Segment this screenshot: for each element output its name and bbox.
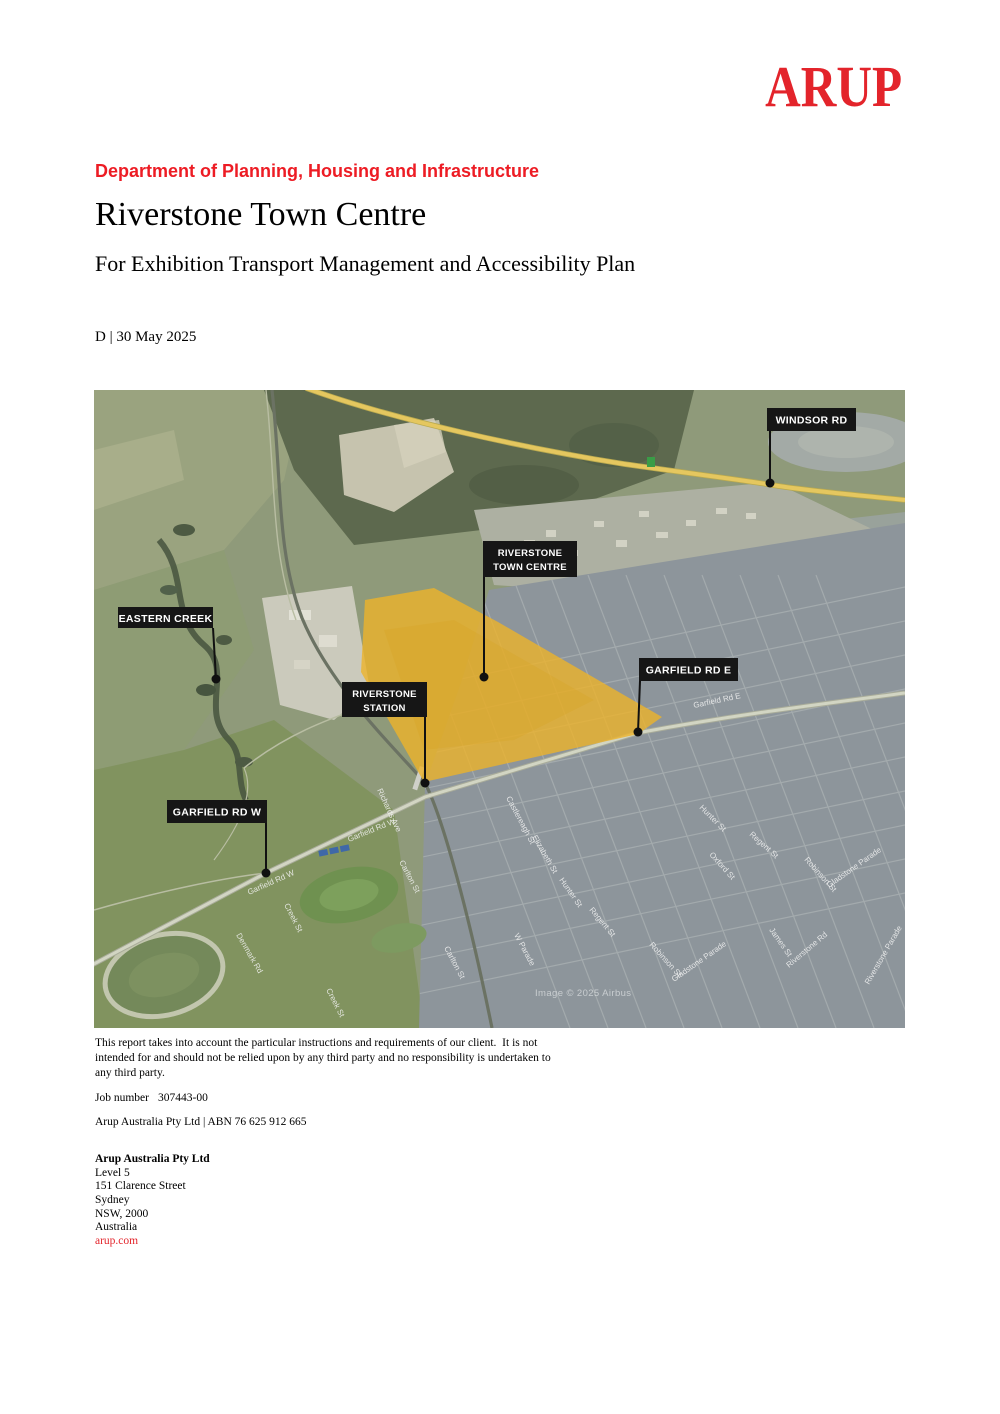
callout-station-line2: STATION: [363, 703, 405, 714]
disclaimer-text: This report takes into account the parti…: [95, 1036, 567, 1082]
callout-station-line1: RIVERSTONE: [352, 689, 417, 700]
job-number-value: 307443-00: [158, 1092, 208, 1104]
map-attribution: Image © 2025 Airbus: [535, 988, 631, 999]
report-title: Riverstone Town Centre: [95, 196, 426, 233]
address-line: Australia: [95, 1221, 210, 1235]
map-terrain: [94, 390, 905, 1028]
job-number-line: Job number307443-00: [95, 1092, 208, 1104]
address-block: Arup Australia Pty Ltd Level 5 151 Clare…: [95, 1153, 210, 1248]
callout-windsor-rd: WINDSOR RD: [767, 408, 856, 431]
callout-riverstone-station: RIVERSTONE STATION: [342, 682, 427, 717]
callout-windsor-rd-label: WINDSOR RD: [776, 415, 848, 427]
client-department: Department of Planning, Housing and Infr…: [95, 161, 539, 182]
address-line: Sydney: [95, 1194, 210, 1208]
aerial-map-svg: Garfield Rd WGarfield Rd WGarfield Rd EC…: [94, 390, 905, 1028]
address-line: NSW, 2000: [95, 1208, 210, 1222]
report-subtitle: For Exhibition Transport Management and …: [95, 251, 635, 277]
arup-logo: ARUP: [765, 58, 902, 116]
callout-town-centre-line1: RIVERSTONE: [498, 548, 563, 559]
callout-garfield-rd-e-label: GARFIELD RD E: [646, 665, 732, 677]
address-line: 151 Clarence Street: [95, 1180, 210, 1194]
address-line: Level 5: [95, 1167, 210, 1181]
report-cover-page: ARUP Department of Planning, Housing and…: [0, 0, 1000, 1414]
address-company-name: Arup Australia Pty Ltd: [95, 1153, 210, 1167]
callout-garfield-rd-w-label: GARFIELD RD W: [173, 807, 261, 819]
job-number-label: Job number: [95, 1092, 149, 1104]
road-sign-green: [647, 457, 655, 467]
callout-garfield-rd-w: GARFIELD RD W: [167, 800, 267, 823]
callout-town-centre-line2: TOWN CENTRE: [493, 562, 567, 573]
arup-website-link[interactable]: arup.com: [95, 1235, 138, 1247]
aerial-map: Garfield Rd WGarfield Rd WGarfield Rd EC…: [94, 390, 905, 1028]
callout-garfield-rd-e: GARFIELD RD E: [639, 658, 738, 681]
callout-eastern-creek-label: EASTERN CREEK: [119, 613, 213, 625]
callout-riverstone-town-centre: RIVERSTONE TOWN CENTRE: [483, 541, 577, 577]
callout-eastern-creek: EASTERN CREEK: [118, 607, 213, 628]
company-abn-line: Arup Australia Pty Ltd | ABN 76 625 912 …: [95, 1116, 307, 1128]
revision-date: D | 30 May 2025: [95, 329, 196, 346]
